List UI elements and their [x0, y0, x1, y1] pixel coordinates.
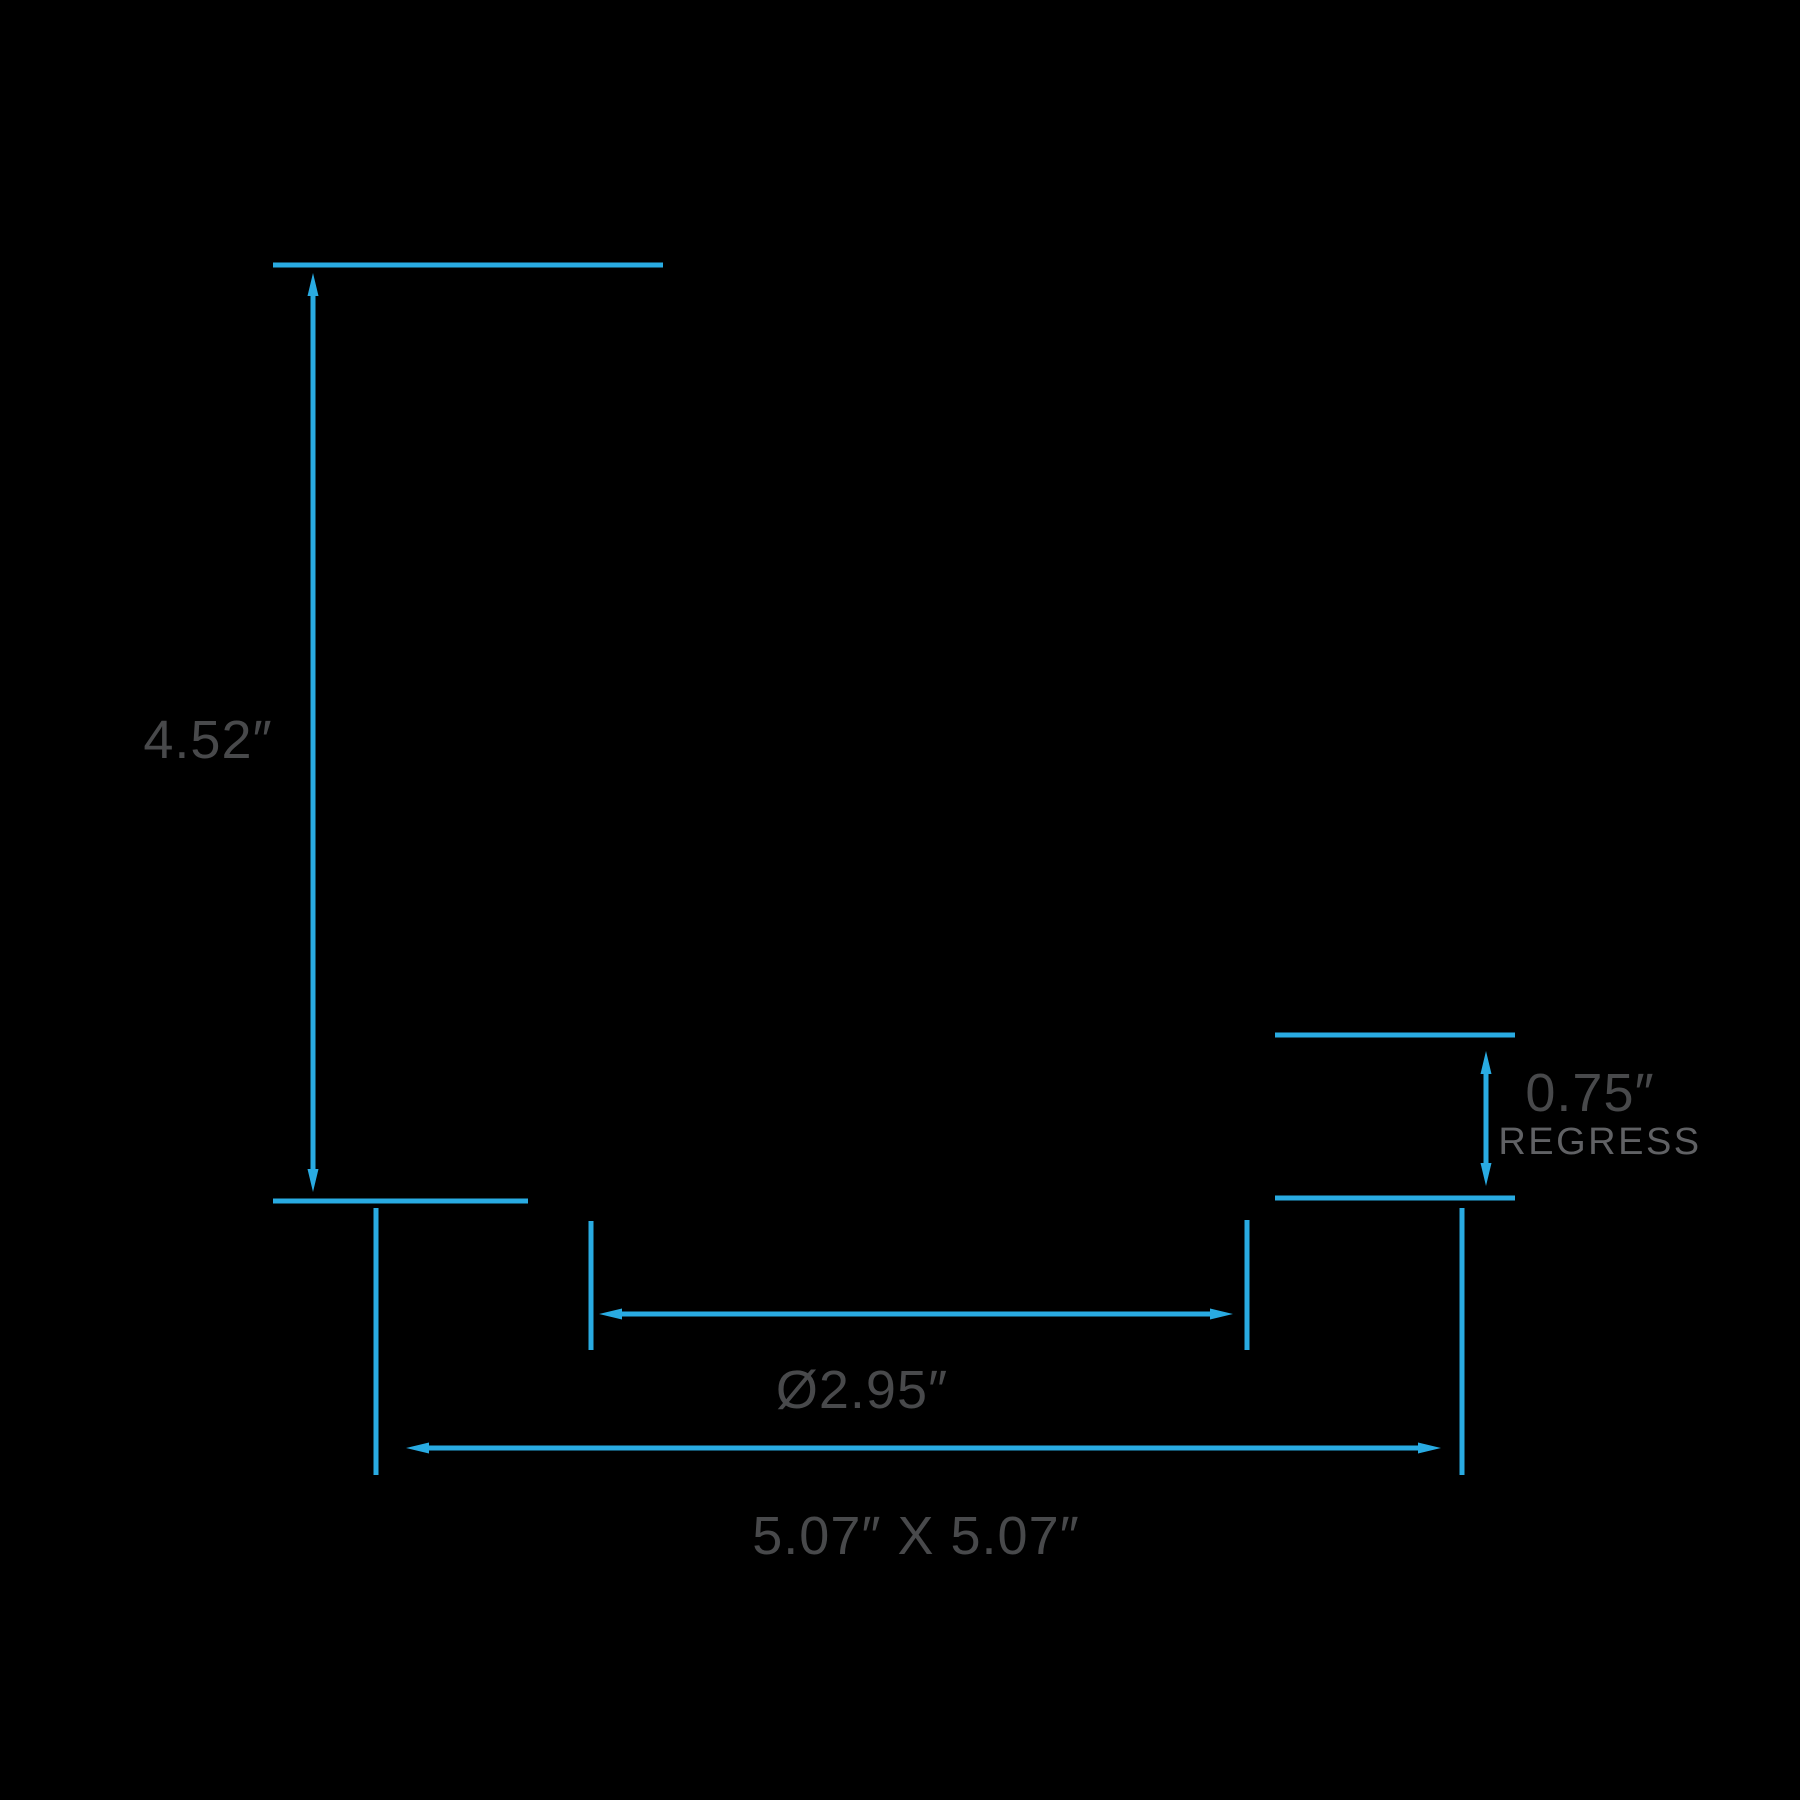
regress-arrow-up-icon [1481, 1051, 1492, 1074]
dimension-diagram-svg: 4.52″ 0.75″ REGRESS Ø2.95″ 5.07″ X 5.07″ [0, 0, 1800, 1800]
cutout-dimension-label: 5.07″ X 5.07″ [752, 1506, 1079, 1566]
regress-arrow-down-icon [1481, 1163, 1492, 1186]
aperture-arrow-right-icon [1210, 1309, 1233, 1320]
cutout-arrow-right-icon [1418, 1443, 1441, 1454]
height-arrow-up-icon [308, 273, 319, 296]
aperture-arrow-left-icon [599, 1309, 622, 1320]
dimension-diagram: 4.52″ 0.75″ REGRESS Ø2.95″ 5.07″ X 5.07″ [0, 0, 1800, 1800]
height-dimension-label: 4.52″ [143, 710, 272, 770]
height-arrow-down-icon [308, 1169, 319, 1192]
regress-value-label: 0.75″ [1525, 1063, 1654, 1123]
cutout-arrow-left-icon [406, 1443, 429, 1454]
aperture-dimension-label: Ø2.95″ [776, 1360, 948, 1420]
regress-caption-label: REGRESS [1498, 1121, 1701, 1163]
